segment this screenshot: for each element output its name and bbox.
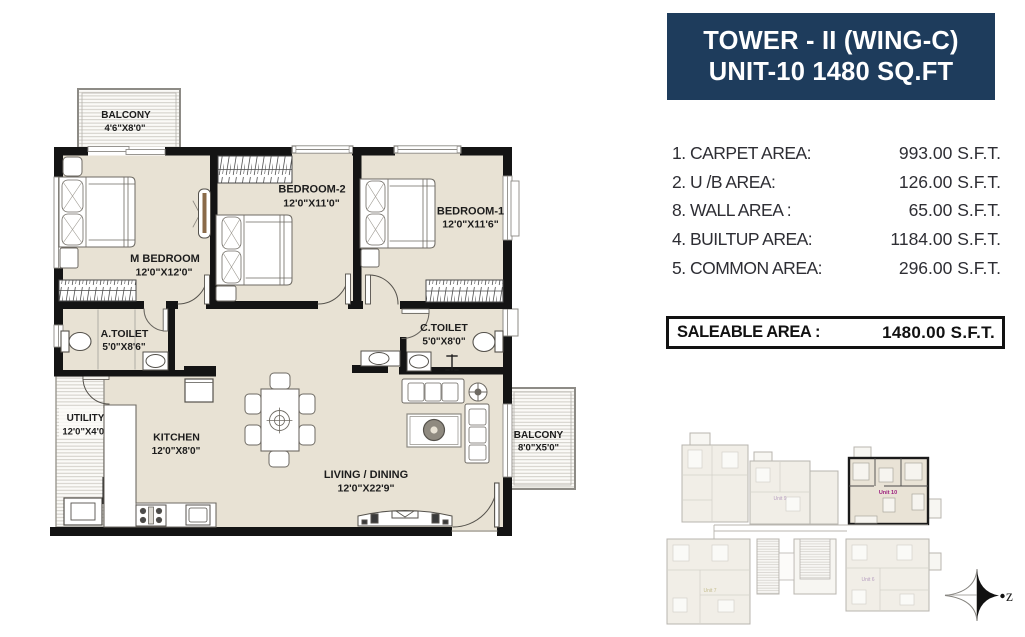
svg-text:BEDROOM-2: BEDROOM-2 [278,184,345,196]
svg-text:A.TOILET: A.TOILET [101,328,149,340]
svg-text:12'0"X4'0": 12'0"X4'0" [62,427,108,438]
svg-text:8'0"X5'0": 8'0"X5'0" [518,443,559,454]
svg-text:12'0"X8'0": 12'0"X8'0" [152,446,201,457]
svg-text:Unit 10: Unit 10 [879,490,897,496]
svg-text:UTILITY: UTILITY [67,413,105,424]
svg-text:Unit 9: Unit 9 [773,496,786,502]
svg-text:12'0"X22'9": 12'0"X22'9" [338,483,395,495]
svg-text:5'0"X8'0": 5'0"X8'0" [422,337,465,348]
svg-text:KITCHEN: KITCHEN [153,432,200,444]
svg-text:Unit 7: Unit 7 [703,588,716,594]
svg-text:BALCONY: BALCONY [514,430,564,441]
svg-text:12'0"X11'0": 12'0"X11'0" [283,198,339,210]
svg-text:5'0"X8'6": 5'0"X8'6" [102,342,145,353]
svg-text:C.TOILET: C.TOILET [420,322,468,334]
svg-text:BEDROOM-1: BEDROOM-1 [437,206,504,218]
svg-text:12'0"X11'6": 12'0"X11'6" [442,219,498,231]
svg-text:12'0"X12'0": 12'0"X12'0" [136,267,193,279]
svg-text:M BEDROOM: M BEDROOM [130,253,200,265]
svg-text:Unit 6: Unit 6 [861,577,874,583]
svg-text:z: z [1006,588,1013,605]
svg-text:LIVING / DINING: LIVING / DINING [324,469,408,481]
svg-text:BALCONY: BALCONY [101,110,151,121]
svg-text:4'6"X8'0": 4'6"X8'0" [105,123,146,134]
